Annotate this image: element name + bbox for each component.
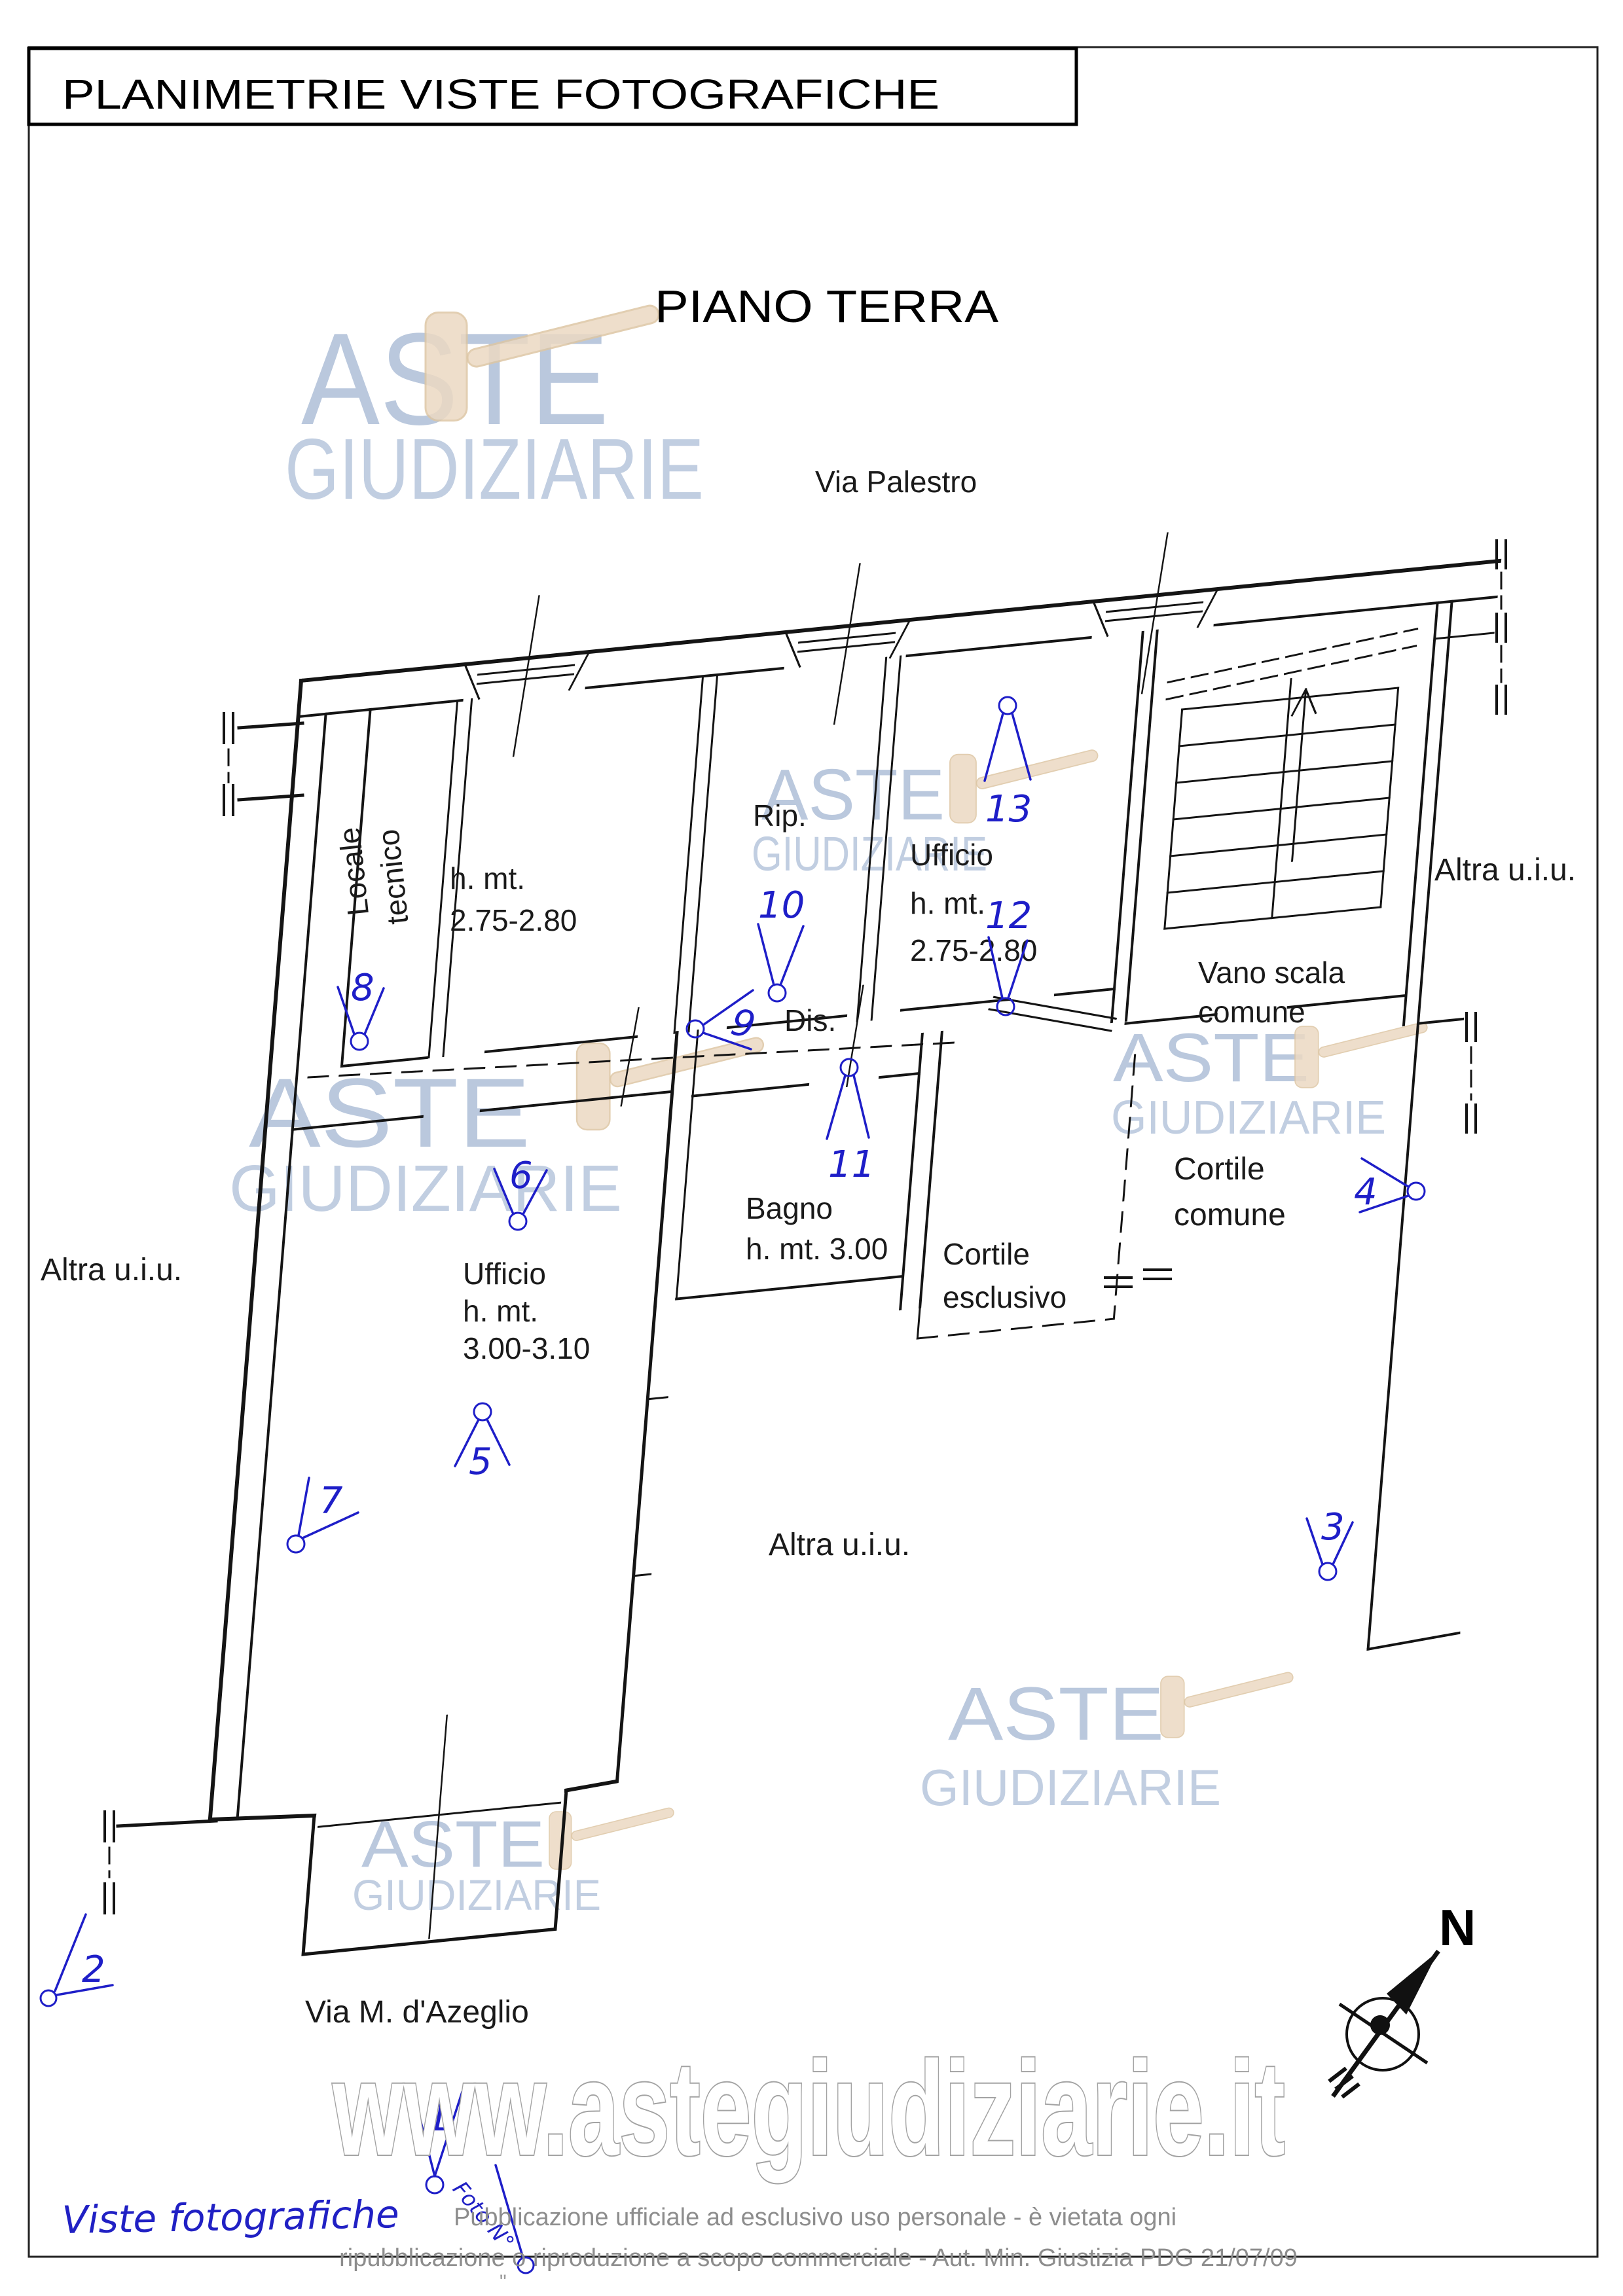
- svg-text:8: 8: [351, 967, 374, 1009]
- aste-giudiziarie-watermark-top: ASTE GIUDIZIARIE: [285, 304, 704, 517]
- photo-marker-7: 7: [287, 1478, 358, 1552]
- north-compass-icon: N: [1329, 1899, 1476, 2097]
- svg-text:13: 13: [985, 788, 1032, 831]
- scanned-floorplan-page: PLANIMETRIE VISTE FOTOGRAFICHE ASTE GIUD…: [0, 0, 1623, 2296]
- photo-marker-5: 5: [455, 1403, 509, 1483]
- label-rip: Rip.: [753, 798, 807, 833]
- svg-text:5: 5: [469, 1441, 492, 1483]
- gavel-icon: [1295, 1022, 1428, 1088]
- label-cortile-esclusivo-1: Cortile: [943, 1237, 1030, 1271]
- legend-caption: Viste fotografiche: [62, 2192, 399, 2242]
- stairs-symbol: [1148, 629, 1417, 931]
- svg-text:4: 4: [1354, 1171, 1377, 1213]
- svg-text:GIUDIZIARIE: GIUDIZIARIE: [285, 421, 704, 517]
- svg-text:ASTE: ASTE: [1113, 1020, 1309, 1096]
- window-symbols: [457, 527, 1223, 762]
- label-locale-tecnico-2: tecnico: [371, 827, 415, 925]
- label-bagno-2: h. mt. 3.00: [746, 1232, 888, 1266]
- svg-text:7: 7: [319, 1480, 343, 1522]
- svg-text:GIUDIZIARIE: GIUDIZIARIE: [1111, 1092, 1386, 1144]
- floor-heading: PIANO TERRA: [655, 281, 998, 332]
- footer-line-1: Pubblicazione ufficiale ad esclusivo uso…: [454, 2204, 1176, 2231]
- floor-plan-walls: [198, 494, 1550, 1965]
- label-cortile-esclusivo-2: esclusivo: [943, 1280, 1067, 1314]
- aste-giudiziarie-watermark-bottom-left: ASTE GIUDIZIARIE: [352, 1807, 674, 1919]
- street-label-top: Via Palestro: [815, 465, 977, 499]
- label-ufficio300-1: Ufficio: [463, 1257, 546, 1291]
- street-label-bottom: Via M. d'Azeglio: [305, 1995, 529, 2030]
- label-ufficio275-3: 2.75-2.80: [910, 933, 1037, 967]
- svg-text:GIUDIZIARIE: GIUDIZIARIE: [920, 1759, 1221, 1816]
- stray-mark: ": [500, 2271, 507, 2293]
- label-ufficio275-2: h. mt.: [910, 886, 985, 920]
- photo-marker-4: 4: [1354, 1158, 1425, 1213]
- label-altra-uiu-left: Altra u.i.u.: [41, 1253, 182, 1287]
- photo-marker-13: 13: [985, 697, 1032, 831]
- label-vano-scala-1: Vano scala: [1198, 956, 1345, 990]
- photo-viewpoint-markers: 1 2 3 4 5 6 7: [41, 697, 1425, 2193]
- label-altra-uiu-right: Altra u.i.u.: [1434, 853, 1576, 888]
- label-ufficio275-1: Ufficio: [910, 838, 993, 872]
- gavel-icon: [1161, 1672, 1294, 1738]
- label-dis: Dis.: [784, 1003, 836, 1037]
- page-title: PLANIMETRIE VISTE FOTOGRAFICHE: [62, 71, 939, 118]
- aste-giudiziarie-watermark-bottom-right: ASTE GIUDIZIARIE: [920, 1672, 1294, 1816]
- svg-text:ASTE: ASTE: [948, 1672, 1164, 1756]
- floorplan-canvas: PLANIMETRIE VISTE FOTOGRAFICHE ASTE GIUD…: [0, 0, 1623, 2296]
- svg-text:11: 11: [828, 1143, 875, 1186]
- gavel-icon: [549, 1807, 674, 1869]
- label-vano-scala-2: comune: [1198, 995, 1305, 1029]
- svg-text:2: 2: [82, 1948, 105, 1991]
- svg-text:GIUDIZIARIE: GIUDIZIARIE: [352, 1871, 601, 1919]
- photo-marker-10: 10: [758, 884, 805, 1001]
- label-altra-uiu-center: Altra u.i.u.: [769, 1528, 910, 1562]
- label-vano275-1: h. mt.: [450, 861, 525, 895]
- label-vano275-2: 2.75-2.80: [450, 903, 577, 937]
- label-locale-tecnico-1: Locale: [332, 826, 375, 918]
- photo-marker-11: 11: [827, 1059, 875, 1186]
- svg-text:6: 6: [509, 1155, 533, 1197]
- label-bagno-1: Bagno: [746, 1191, 833, 1225]
- photo-marker-2: 2: [41, 1914, 113, 2006]
- label-ufficio300-2: h. mt.: [463, 1294, 538, 1328]
- svg-text:10: 10: [758, 884, 805, 927]
- svg-text:12: 12: [985, 895, 1032, 937]
- aste-giudiziarie-watermark-right: ASTE GIUDIZIARIE: [1111, 1020, 1428, 1144]
- label-cortile-comune-2: comune: [1174, 1198, 1286, 1232]
- footer-line-2: ripubblicazione o riproduzione a scopo c…: [339, 2244, 1298, 2272]
- compass-north-label: N: [1439, 1899, 1476, 1956]
- label-ufficio300-3: 3.00-3.10: [463, 1331, 590, 1365]
- wall-break-symbols: [105, 541, 1506, 1913]
- photo-marker-3: 3: [1307, 1506, 1353, 1580]
- svg-text:3: 3: [1321, 1506, 1345, 1549]
- url-watermark: www.astegiudiziarie.it: [332, 2034, 1285, 2183]
- label-cortile-comune-1: Cortile: [1174, 1152, 1265, 1187]
